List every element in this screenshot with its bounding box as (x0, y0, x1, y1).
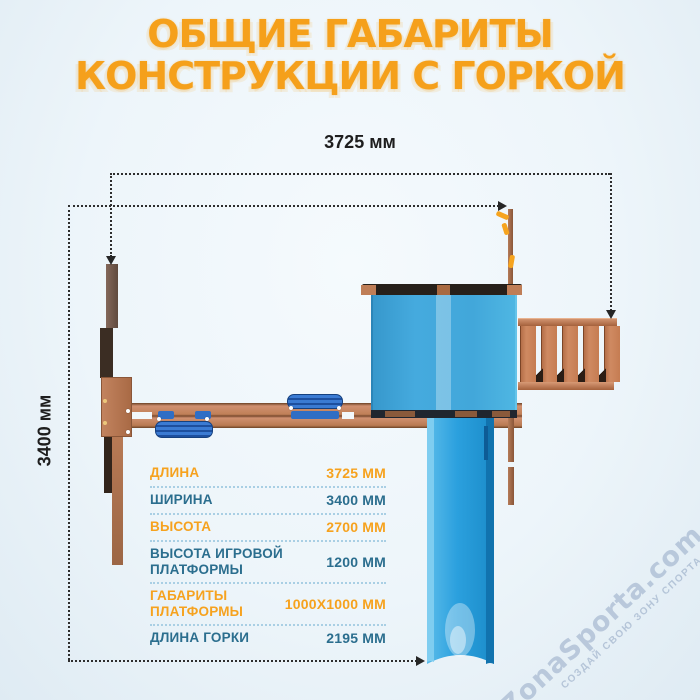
table-row: ШИРИНА 3400 ММ (150, 488, 386, 515)
beam-slot (342, 412, 354, 419)
canopy-ridge-block (437, 285, 450, 295)
canopy-seam (436, 294, 451, 418)
canopy-corner-post (507, 285, 522, 295)
bolt-icon (126, 409, 130, 413)
beam-slot (130, 412, 152, 419)
dimension-line-upper-horizontal (68, 205, 499, 207)
canopy-corner-post (361, 285, 376, 295)
spec-value: 3725 ММ (326, 465, 386, 481)
ladder-rung (541, 326, 557, 382)
bolt-icon (205, 417, 209, 421)
slide-support-post (508, 414, 514, 462)
table-row: ГАБАРИТЫ ПЛАТФОРМЫ 1000X1000 ММ (150, 584, 386, 626)
spec-value: 2700 ММ (326, 519, 386, 535)
bolt-icon (157, 417, 161, 421)
ladder-rail (518, 318, 617, 326)
swing-seat-1 (155, 421, 213, 438)
spec-value: 1200 ММ (326, 554, 386, 570)
dimension-line-left-vertical (68, 205, 70, 660)
arrow-down-left-icon (106, 256, 116, 265)
dimension-line-top-right-drop (610, 173, 612, 311)
platform-floor-plank (492, 411, 510, 417)
table-row: ВЫСОТА 2700 ММ (150, 515, 386, 542)
spec-label: ДЛИНА ГОРКИ (150, 630, 249, 646)
bolt-icon (337, 406, 341, 410)
arrow-right-bottom-icon (416, 656, 425, 666)
table-row: ВЫСОТА ИГРОВОЙ ПЛАТФОРМЫ 1200 ММ (150, 542, 386, 584)
spec-label: ВЫСОТА (150, 519, 211, 535)
ladder-rung (562, 326, 578, 382)
table-row: ДЛИНА 3725 ММ (150, 461, 386, 488)
product-dimensions-infographic: ОБЩИЕ ГАБАРИТЫ КОНСТРУКЦИИ С ГОРКОЙ 3725… (0, 0, 700, 700)
spec-label: ШИРИНА (150, 492, 213, 508)
spec-label: ГАБАРИТЫ ПЛАТФОРМЫ (150, 588, 243, 619)
bolt-icon (103, 399, 107, 403)
ladder-rung (583, 326, 599, 382)
title-line-1: ОБЩИЕ ГАБАРИТЫ (0, 14, 700, 56)
spec-value: 1000X1000 ММ (285, 596, 386, 612)
table-row: ДЛИНА ГОРКИ 2195 ММ (150, 626, 386, 651)
ladder-rung (604, 326, 620, 382)
a-frame-leg-upper-dark (100, 328, 113, 378)
page-title: ОБЩИЕ ГАБАРИТЫ КОНСТРУКЦИИ С ГОРКОЙ (0, 14, 700, 98)
dimension-line-top (110, 173, 610, 175)
platform-floor-plank (455, 411, 477, 417)
slide (427, 418, 494, 671)
platform-floor-plank (385, 411, 415, 417)
ladder-rung (520, 326, 536, 382)
a-frame-leg-upper (106, 264, 118, 328)
swing-seat-edge (291, 411, 339, 419)
spec-value: 3400 ММ (326, 492, 386, 508)
spec-value: 2195 ММ (326, 630, 386, 646)
a-frame-leg-lower (112, 434, 123, 565)
spec-label: ВЫСОТА ИГРОВОЙ ПЛАТФОРМЫ (150, 546, 283, 577)
title-line-2: КОНСТРУКЦИИ С ГОРКОЙ (0, 56, 700, 98)
ladder-rail (518, 382, 614, 390)
ladder-rung-shadow (578, 366, 585, 382)
bolt-icon (126, 430, 130, 434)
a-frame-apex (101, 377, 132, 437)
ladder-rung-shadow (557, 366, 564, 382)
dimension-line-top-left-drop (110, 173, 112, 257)
bolt-icon (289, 406, 293, 410)
arrow-down-right-icon (606, 310, 616, 319)
spec-label: ДЛИНА (150, 465, 199, 481)
swing-seat-2 (287, 394, 343, 409)
width-dimension-label: 3400 мм (35, 394, 56, 468)
watermark: ZonaSporta.com СОЗДАЙ СВОЮ ЗОНУ СПОРТА (495, 488, 700, 700)
flag-icon (508, 255, 515, 269)
spec-table: ДЛИНА 3725 ММ ШИРИНА 3400 ММ ВЫСОТА 2700… (150, 461, 386, 651)
bolt-icon (103, 421, 107, 425)
length-dimension-label: 3725 мм (110, 132, 610, 153)
arrow-right-upper-icon (498, 201, 507, 211)
ladder-rung-shadow (536, 366, 543, 382)
dimension-line-bottom-horizontal (68, 660, 417, 662)
ladder-rung-shadow (599, 366, 606, 382)
slide-shape (427, 418, 494, 666)
slide-support-post (508, 467, 514, 505)
flag-pole (508, 209, 513, 286)
